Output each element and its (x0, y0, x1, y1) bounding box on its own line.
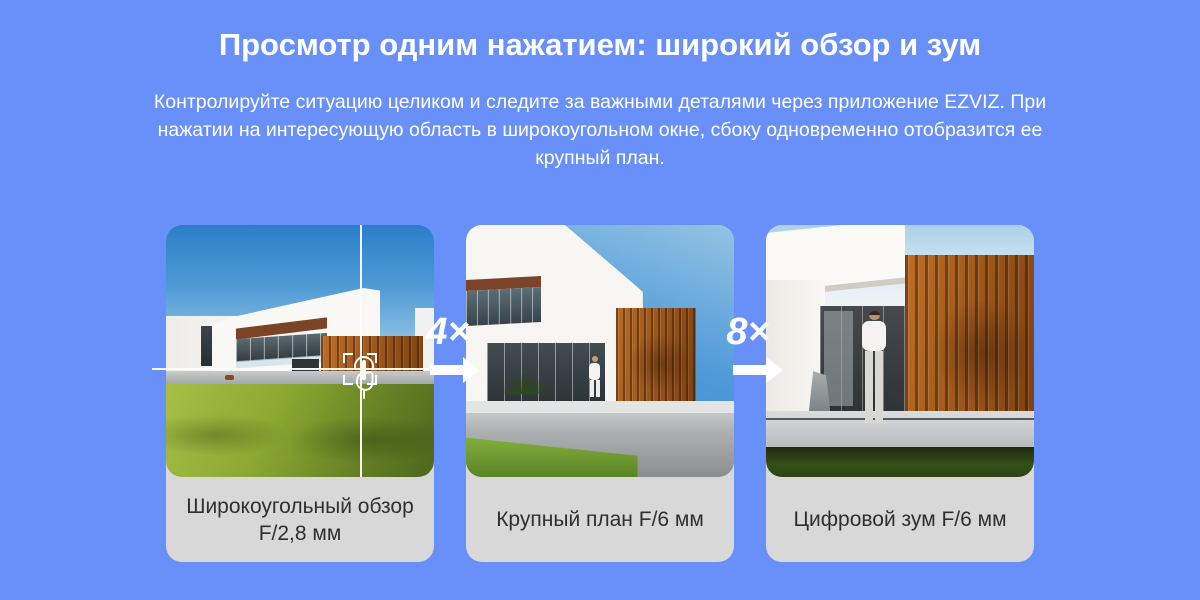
wide-angle-photo (166, 225, 434, 477)
camera-views-row: Широкоугольный обзор F/2,8 мм (166, 225, 1034, 562)
paving-joint-line (766, 418, 1034, 420)
person-legs (864, 351, 884, 387)
person-torso (589, 363, 600, 380)
person-torso (862, 321, 886, 350)
person-leg (596, 380, 600, 397)
card-caption: Крупный план F/6 мм (466, 477, 734, 562)
card-caption-text: Широкоугольный обзор F/2,8 мм (184, 493, 416, 547)
dark-grass-base (766, 447, 1034, 477)
page-description: Контролируйте ситуацию целиком и следите… (130, 88, 1070, 172)
person-shoe (875, 387, 883, 423)
card-caption: Цифровой зум F/6 мм (766, 477, 1034, 562)
card-caption-text: Цифровой зум F/6 мм (793, 506, 1006, 533)
arrow-shaft (430, 365, 465, 375)
person-head (592, 356, 598, 362)
person-leg (865, 351, 873, 387)
shrubs (501, 374, 549, 394)
wooden-slat-wall (616, 308, 696, 409)
curtain (824, 311, 853, 407)
close-up-photo (466, 225, 734, 477)
lawn (166, 384, 434, 477)
walking-person (857, 311, 891, 423)
person-shoe (865, 387, 873, 423)
card-wide-angle: Широкоугольный обзор F/2,8 мм (166, 225, 434, 562)
arrow-shaft (733, 365, 768, 375)
person-leg (590, 380, 594, 397)
card-caption-text: Крупный план F/6 мм (496, 506, 704, 533)
person-legs (589, 380, 601, 397)
upper-glass-band (466, 287, 541, 326)
dog (225, 375, 234, 380)
card-digital-zoom: Цифровой зум F/6 мм (766, 225, 1034, 562)
person-leg (875, 351, 883, 387)
person-feet (864, 387, 884, 423)
digital-zoom-photo (766, 225, 1034, 477)
card-close-up: Крупный план F/6 мм (466, 225, 734, 562)
card-caption: Широкоугольный обзор F/2,8 мм (166, 477, 434, 562)
walking-person (587, 356, 603, 408)
person-head (869, 311, 880, 321)
promo-section: Просмотр одним нажатием: широкий обзор и… (0, 0, 1200, 600)
page-title: Просмотр одним нажатием: широкий обзор и… (0, 26, 1200, 64)
wooden-slat-wall (905, 255, 1034, 416)
